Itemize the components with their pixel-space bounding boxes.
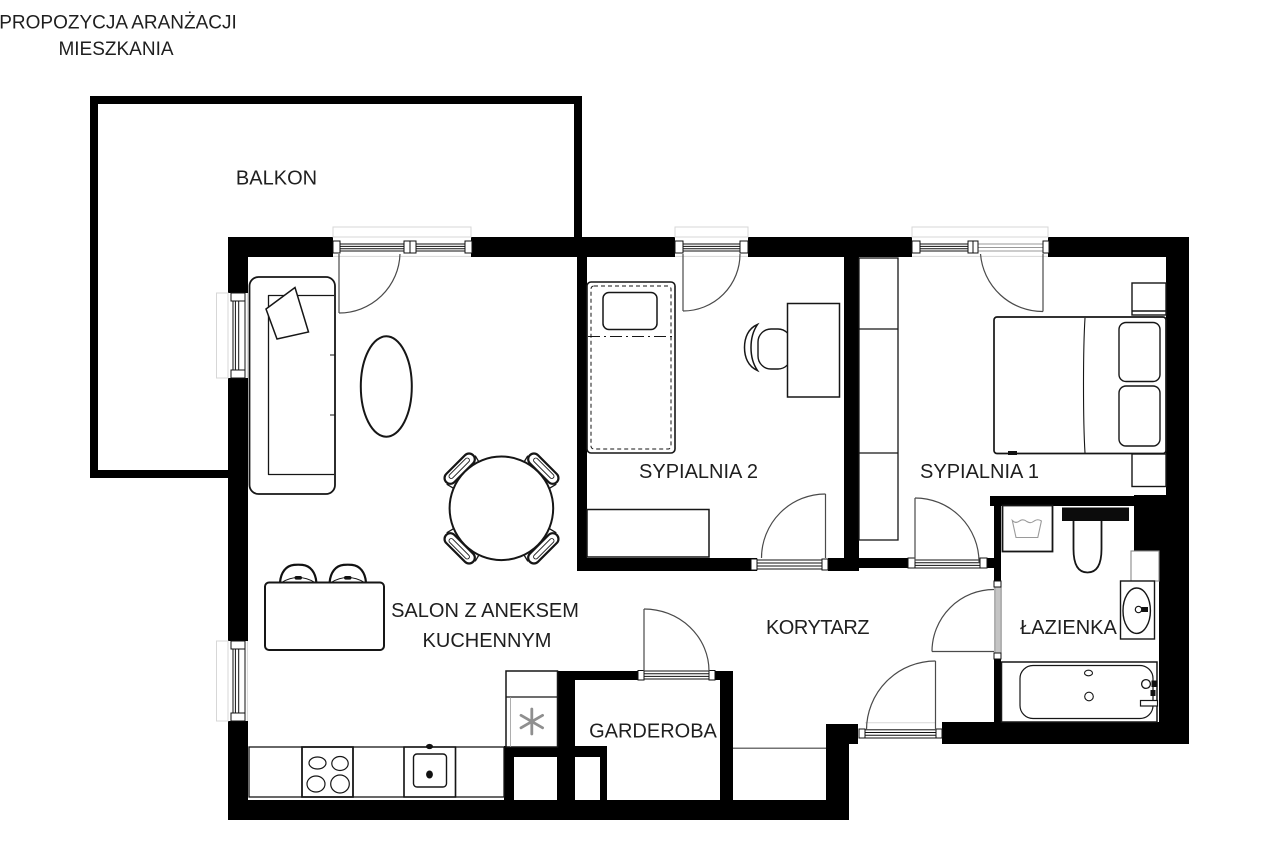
svg-text:SYPIALNIA 1: SYPIALNIA 1 bbox=[920, 461, 1039, 483]
svg-text:SALON Z ANEKSEM: SALON Z ANEKSEM bbox=[391, 600, 579, 622]
svg-text:PROPOZYCJA ARANŻACJI: PROPOZYCJA ARANŻACJI bbox=[0, 13, 237, 34]
svg-text:BALKON: BALKON bbox=[236, 168, 317, 190]
svg-text:KORYTARZ: KORYTARZ bbox=[766, 617, 869, 639]
svg-text:GARDEROBA: GARDEROBA bbox=[589, 721, 717, 743]
svg-text:SYPIALNIA 2: SYPIALNIA 2 bbox=[639, 461, 758, 483]
svg-text:ŁAZIENKA: ŁAZIENKA bbox=[1020, 617, 1117, 639]
svg-text:KUCHENNYM: KUCHENNYM bbox=[423, 630, 552, 652]
svg-text:MIESZKANIA: MIESZKANIA bbox=[58, 39, 173, 60]
